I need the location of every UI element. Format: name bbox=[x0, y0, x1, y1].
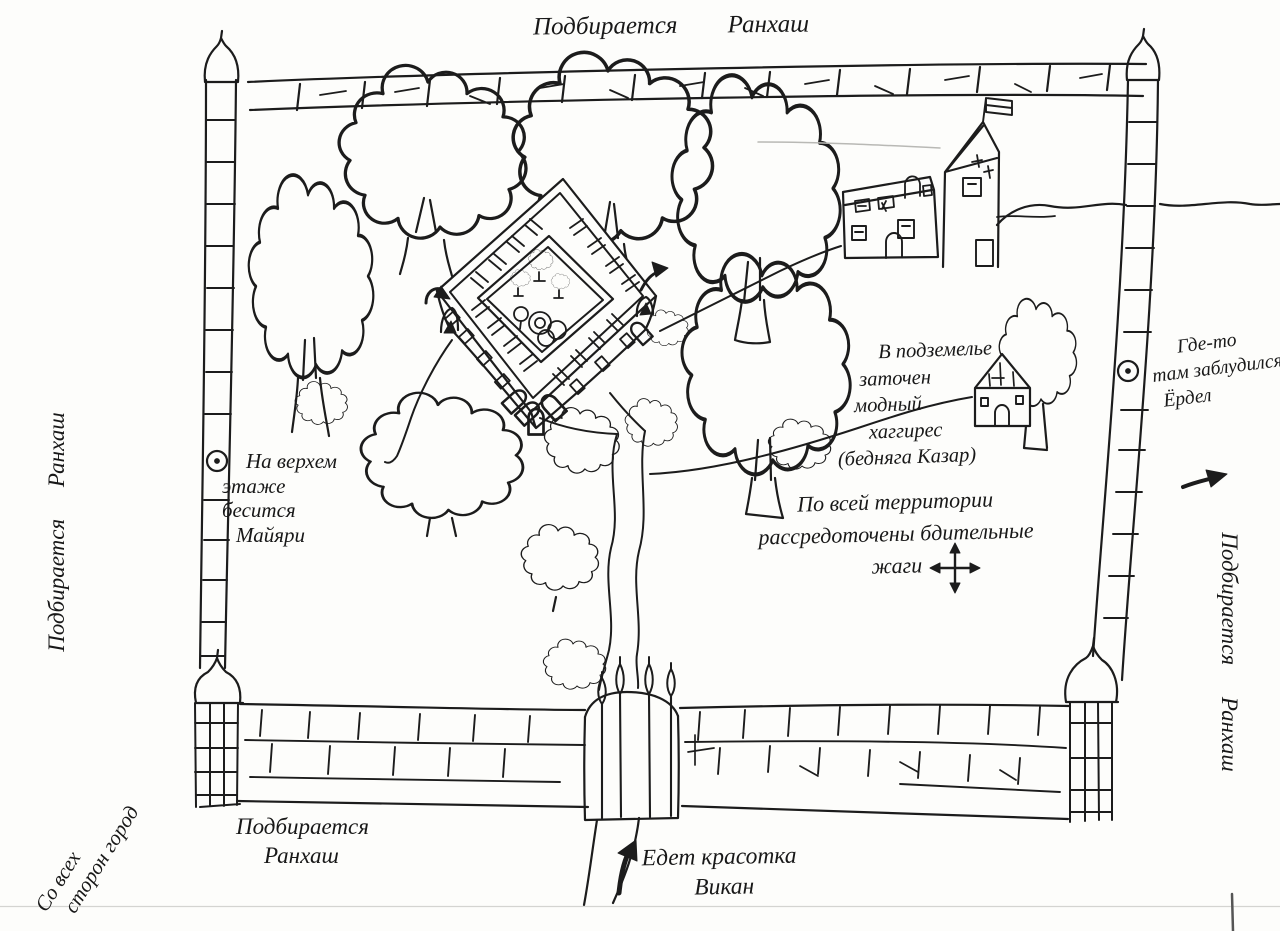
note-line: В подземелье bbox=[878, 335, 993, 365]
note-line: Едет красотка bbox=[641, 841, 796, 874]
label-line: Подбирается bbox=[236, 812, 369, 841]
note-line: Майяри bbox=[236, 523, 337, 548]
note-guards: По всей территории рассредоточены бдител… bbox=[741, 482, 1051, 586]
note-line: Викан bbox=[694, 871, 797, 903]
label-approaching-left: Подбирается Ранхаш bbox=[44, 412, 70, 652]
bottom-wall bbox=[237, 704, 1070, 819]
note-maiyari: На верхем этаже бесится Майяри bbox=[222, 449, 337, 547]
castle bbox=[426, 179, 668, 435]
note-line: На верхем bbox=[246, 449, 337, 474]
gate-outer-path bbox=[584, 818, 639, 905]
map-drawing bbox=[0, 0, 1280, 931]
left-wall bbox=[200, 80, 236, 668]
lost-direction-arrow bbox=[1183, 470, 1227, 487]
label-line: Ранхаш bbox=[264, 841, 369, 870]
scan-artifacts bbox=[0, 894, 1280, 931]
label-approaching-top: Подбирается Ранхаш bbox=[533, 11, 809, 42]
note-dungeon: В подземелье заточен модный хаггирес (бе… bbox=[834, 335, 996, 473]
note-arrival: Едет красотка Викан bbox=[641, 841, 797, 904]
note-line: бесится bbox=[222, 498, 337, 523]
note-line: этаже bbox=[222, 474, 337, 499]
note-line: (бедняга Казар) bbox=[837, 441, 996, 473]
scanned-map-page: Подбирается Ранхаш Подбирается Ранхаш По… bbox=[0, 0, 1280, 931]
label-approaching-right: Подбирается Ранхаш bbox=[1216, 532, 1242, 772]
label-approaching-bottom: Подбирается Ранхаш bbox=[236, 812, 369, 870]
note-lost: Где-то там заблудился Ёрдел bbox=[1148, 322, 1280, 415]
